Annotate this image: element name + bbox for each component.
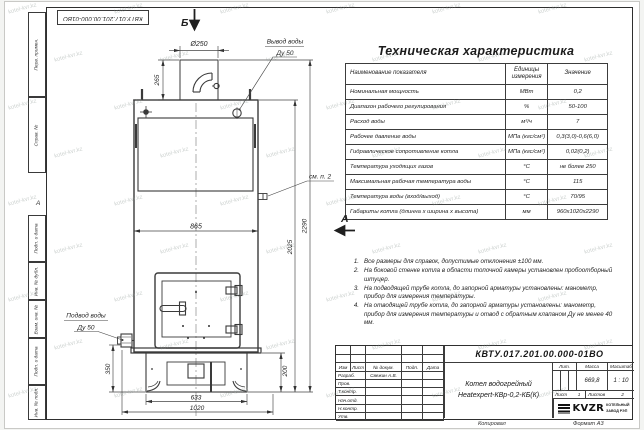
dim-inlet-height: 350 [105, 363, 112, 374]
dim-base-width: 633 [191, 395, 202, 402]
callout-see-note-2: см. п. 2 [309, 174, 332, 181]
door-handle [160, 306, 186, 312]
dim-depth: 1020 [190, 405, 205, 412]
dim-height-total: 2290 [302, 218, 309, 234]
dim-base-height: 200 [282, 365, 289, 377]
dim-chimney: 265 [154, 74, 161, 86]
top-fitting-cross [140, 106, 152, 118]
sampling-fitting [258, 194, 267, 200]
gas-elbow [193, 73, 219, 92]
boiler-drawing: Ø250 265 865 350 200 2025 2290 633 1020 … [0, 0, 644, 430]
boiler-structure [118, 60, 268, 416]
dim-width: 865 [190, 224, 202, 231]
dim-height-body: 2025 [287, 239, 294, 255]
outlet-label: Вывод воды [267, 38, 304, 46]
view-marker-top: Б [181, 17, 189, 29]
upper-panel [138, 118, 253, 191]
dimensions [64, 46, 334, 415]
dim-diameter: Ø250 [189, 41, 207, 48]
view-marker-side: А [340, 213, 349, 225]
furnace-door [155, 273, 242, 348]
base-support [146, 353, 247, 392]
inlet-label: Подвод воды [66, 312, 106, 320]
inlet-label-dn: Ду 50 [77, 325, 95, 332]
outlet-label-dn: Ду 50 [276, 50, 294, 57]
